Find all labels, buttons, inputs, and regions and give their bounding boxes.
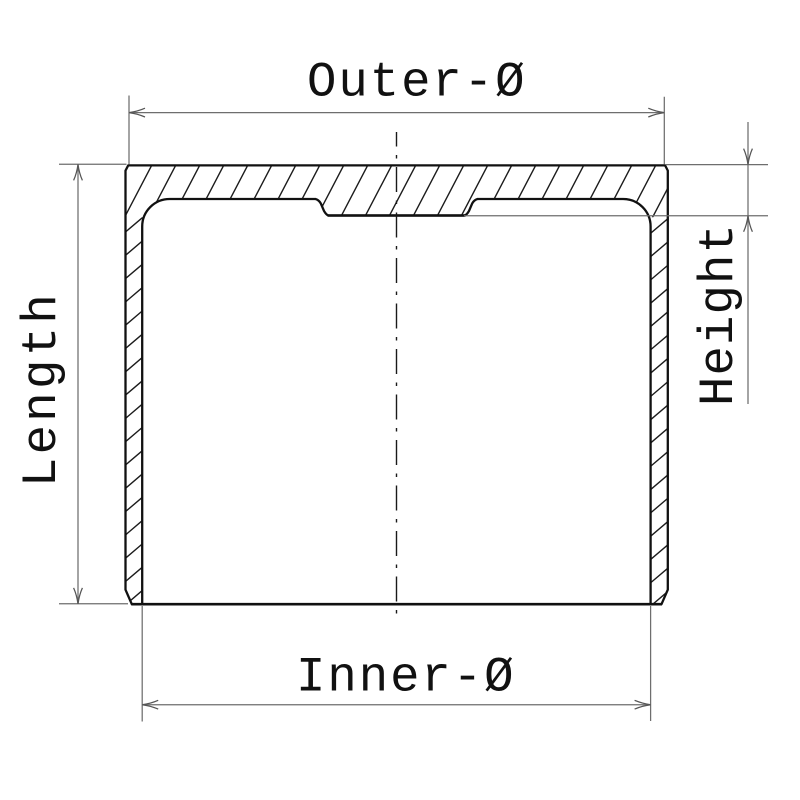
svg-text:Height: Height — [691, 223, 747, 406]
svg-text:Outer-Ø: Outer-Ø — [307, 55, 526, 111]
svg-text:Length: Length — [14, 291, 70, 487]
svg-text:Inner-Ø: Inner-Ø — [296, 650, 515, 706]
